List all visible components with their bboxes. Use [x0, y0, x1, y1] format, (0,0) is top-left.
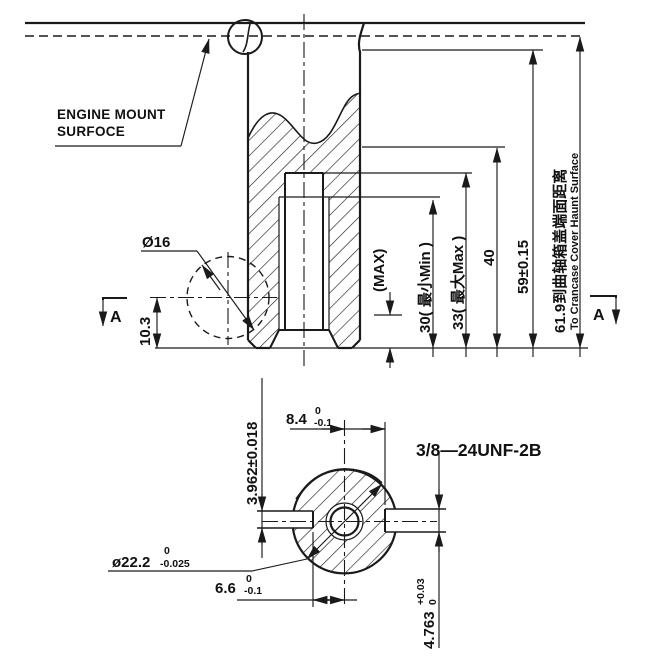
- dim-33: 33( 最大Max ): [449, 173, 467, 357]
- dim-3-962: 3.962±0.018: [244, 378, 262, 558]
- dim-4-763: 4.763 +0.03 0: [415, 452, 439, 649]
- engineering-drawing-canvas: Ø16 ENGINE MOUNT SURFOCE A A 10.3: [0, 0, 670, 670]
- dim-4-763-tol-lower: 0: [427, 599, 439, 605]
- engine-mount-label-line1: ENGINE MOUNT: [57, 107, 166, 122]
- dim-4-763-tol-upper: +0.03: [415, 578, 427, 605]
- dim-10-3: 10.3: [137, 298, 157, 348]
- dim-6-6-tol-lower: -0.1: [244, 585, 262, 597]
- section-a-a-view: ø22.2 0 -0.025 8.4 0 -0.1 6.6 0 -0.1: [108, 378, 541, 649]
- dim-33-label: 33( 最大Max ): [449, 236, 467, 330]
- dim-dia16-label: Ø16: [142, 234, 170, 251]
- detail-balloon-circle: [228, 20, 262, 54]
- dim-30: 30( 最小Min ): [416, 200, 434, 357]
- engine-mount-leader: ENGINE MOUNT SURFOCE: [55, 39, 209, 146]
- dim-8-4-tol-upper: 0: [315, 405, 321, 417]
- crankshaft-section-drawing: Ø16 ENGINE MOUNT SURFOCE A A 10.3: [0, 0, 670, 670]
- dim-3-962-label: 3.962±0.018: [244, 422, 261, 505]
- section-marker-right: A: [590, 296, 616, 324]
- dim-dia22-2-tol-lower: -0.025: [160, 558, 190, 570]
- dim-dia16: Ø16: [141, 234, 254, 330]
- dim-dia22-2-tol-upper: 0: [164, 545, 170, 557]
- dim-10-3-label: 10.3: [137, 317, 154, 346]
- dim-61-9-label-cn: 61.9到曲轴箱盖端面距离: [551, 169, 569, 333]
- dim-6-6-value: 6.6: [215, 580, 236, 597]
- extension-lines: [155, 50, 588, 348]
- dim-59-label: 59±0.15: [515, 240, 532, 294]
- dim-dia22-2-value: ø22.2: [112, 554, 150, 571]
- dim-61-9-label-en: To Crancase Cover Haunt Surface: [569, 153, 581, 330]
- dim-max-label: (MAX): [371, 249, 388, 292]
- dim-61-9: 61.9到曲轴箱盖端面距离 To Crancase Cover Haunt Su…: [551, 37, 581, 357]
- section-marker-right-label: A: [593, 307, 605, 324]
- engine-mount-label-line2: SURFOCE: [57, 124, 125, 139]
- dim-6-6-tol-upper: 0: [246, 573, 252, 585]
- dim-8-4-value: 8.4: [286, 411, 308, 428]
- dim-40-label: 40: [481, 249, 498, 266]
- section-marker-left-label: A: [110, 309, 122, 326]
- main-section-view: Ø16 ENGINE MOUNT SURFOCE A A 10.3: [25, 14, 616, 368]
- dim-4-763-value: 4.763: [421, 611, 438, 649]
- section-marker-left: A: [103, 298, 127, 326]
- dim-40: 40: [481, 148, 498, 357]
- thread-callout-label: 3/8—24UNF-2B: [416, 440, 541, 460]
- dim-max: (MAX): [371, 249, 390, 368]
- dim-59: 59±0.15: [515, 50, 533, 357]
- dim-30-label: 30( 最小Min ): [416, 242, 434, 333]
- dim-8-4-tol-lower: -0.1: [314, 417, 332, 429]
